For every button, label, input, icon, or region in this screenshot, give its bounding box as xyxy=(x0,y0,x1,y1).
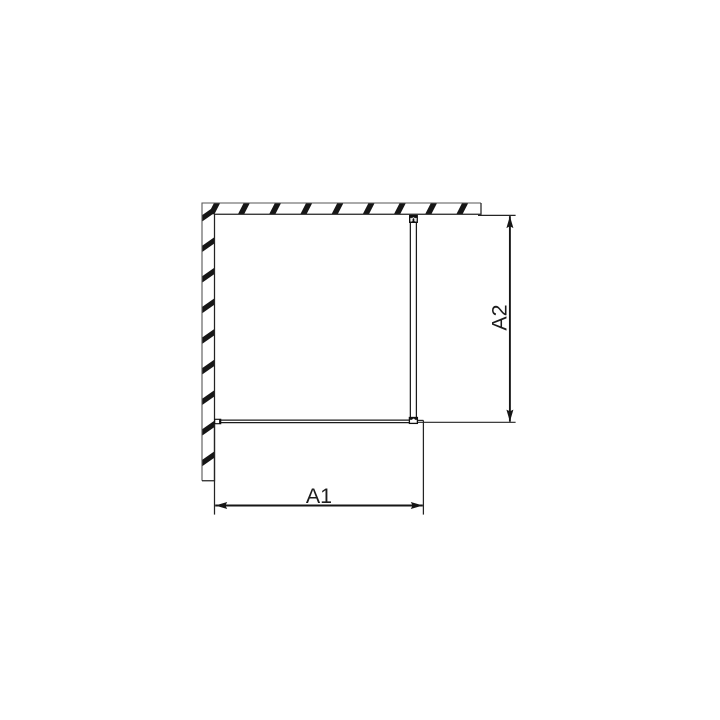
svg-text:A2: A2 xyxy=(488,305,512,331)
svg-text:A1: A1 xyxy=(306,484,332,508)
